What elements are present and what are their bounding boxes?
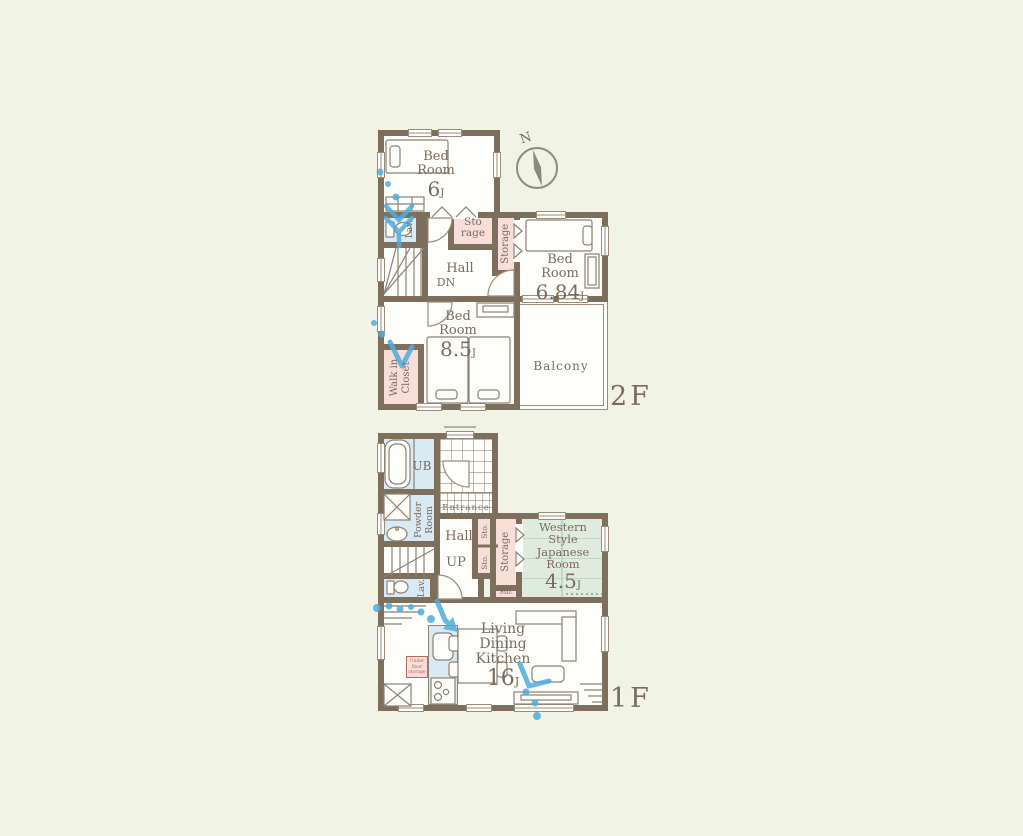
lav1-text: Lav.: [417, 579, 427, 597]
bedroom6-unit: J: [440, 187, 444, 199]
lav-text: Lav.: [405, 220, 415, 238]
wsjr-line2: Style: [524, 533, 602, 545]
label-1f-hall: Hall: [438, 530, 480, 544]
storage-v-text: Storage: [500, 224, 512, 264]
label-sto-b: Sto.: [477, 549, 493, 575]
label-bedroom6: Bed Room 6J: [408, 150, 464, 201]
bedroom6-name-line2: Room: [408, 164, 464, 178]
label-1f-up: UP: [438, 556, 474, 570]
label-walkin-closet: Walk in Closet: [380, 350, 422, 404]
floor-tag-1f: 1F: [610, 683, 652, 714]
label-japanese-room: Western Style Japanese Room 4.5J: [524, 521, 602, 592]
label-2f-storage-v: Storage: [494, 218, 518, 270]
label-2f-dn: DN: [430, 277, 462, 289]
label-sto-c: Sto.: [492, 589, 520, 597]
wsjr-size: 4.5: [545, 569, 577, 593]
ldk-unit: J: [515, 674, 520, 688]
bedroom684-name-line1: Bed: [520, 253, 600, 267]
stove-icon: [431, 678, 455, 704]
floor-tag-2f: 2F: [610, 381, 652, 412]
bedroom6-name-line1: Bed: [408, 150, 464, 164]
sto-a-text: Sto.: [481, 524, 490, 539]
toilet-icon: [387, 581, 408, 594]
bedroom85-size: 8.5: [440, 337, 472, 361]
bedroom85-unit: J: [472, 347, 476, 359]
bedroom6-size: 6: [428, 177, 441, 201]
bedroom684-name-line2: Room: [520, 267, 600, 281]
ldk-line3: Kitchen: [461, 652, 545, 667]
label-powder-room: Powder Room: [412, 496, 438, 544]
bedroom684-size: 6.84: [536, 280, 581, 304]
stairs-icon: [384, 248, 424, 296]
bed-icon: [526, 220, 592, 251]
label-bedroom85: Bed Room 8.5J: [420, 310, 496, 361]
ldk-size: 16: [487, 666, 515, 691]
label-ub: UB: [408, 460, 436, 473]
storage1-text: Storage: [500, 532, 512, 572]
compass-icon: [517, 148, 557, 188]
powder-line2: Room: [425, 502, 436, 538]
washing-machine-icon: [384, 494, 410, 520]
label-sto-a: Sto.: [477, 518, 493, 544]
label-balcony: Balcony: [526, 360, 596, 373]
sto-b-text: Sto.: [481, 555, 490, 570]
bedroom684-unit: J: [580, 290, 584, 302]
label-1f-lav: Lav.: [414, 576, 430, 600]
floorplan-canvas: Under floor storage: [0, 0, 1023, 836]
sink-icon: [387, 527, 407, 541]
wic-line1: Walk in: [389, 358, 401, 395]
storage-x-icon: [384, 684, 411, 706]
label-2f-hall: Hall: [440, 262, 480, 276]
ldk-line1: Living: [461, 622, 545, 637]
label-1f-storage: Storage: [492, 519, 520, 585]
label-ldk: Living Dining Kitchen 16J: [461, 622, 545, 691]
label-2f-lav: Lav.: [402, 216, 418, 242]
bedroom85-name-line2: Room: [420, 324, 496, 338]
label-bedroom684: Bed Room 6.84J: [520, 253, 600, 304]
ldk-line2: Dining: [461, 637, 545, 652]
storage-h-line2: rage: [450, 228, 496, 239]
floorplan-line-art: [0, 0, 1023, 836]
label-2f-storage-h: Sto rage: [450, 217, 496, 240]
label-entrance: Entrance: [436, 504, 496, 513]
wsjr-unit: J: [577, 579, 581, 591]
corner-steps-icon: [580, 684, 604, 702]
bedroom85-name-line1: Bed: [420, 310, 496, 324]
stairs-icon: [384, 547, 434, 577]
wic-line2: Closet: [401, 358, 413, 395]
